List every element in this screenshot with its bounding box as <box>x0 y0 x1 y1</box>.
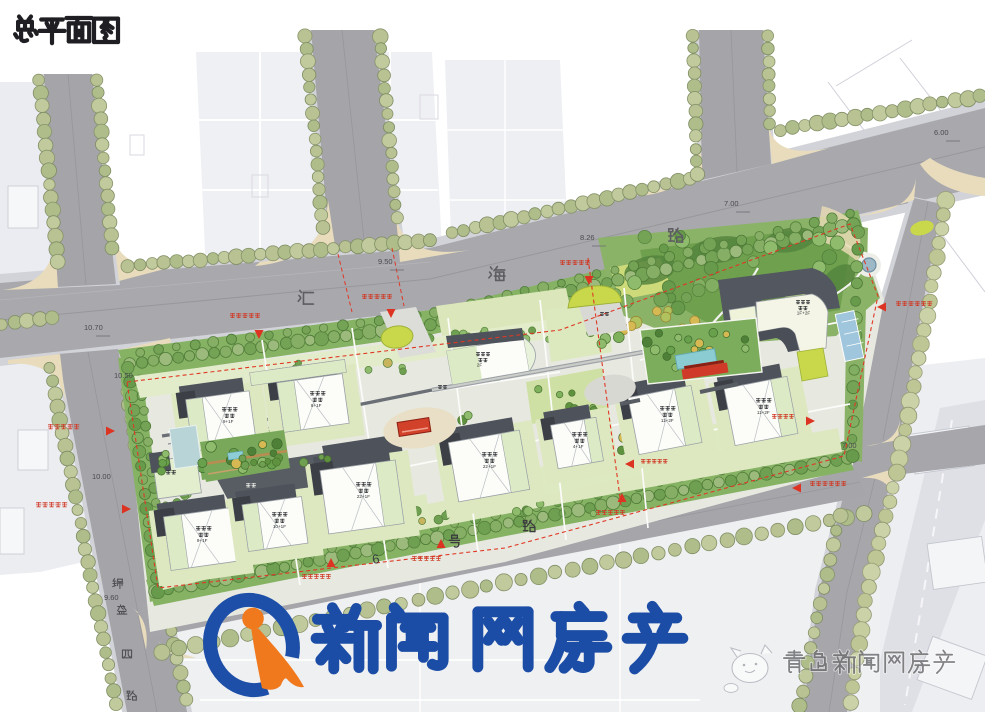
svg-text:7.00: 7.00 <box>724 199 739 208</box>
svg-text:22+1F: 22+1F <box>357 494 370 499</box>
svg-text:10.00: 10.00 <box>92 472 111 481</box>
svg-text:10.50: 10.50 <box>114 371 133 380</box>
svg-text:9.60: 9.60 <box>104 593 119 602</box>
svg-text:4+1F: 4+1F <box>573 444 584 449</box>
svg-text:10+1F: 10+1F <box>273 524 286 529</box>
svg-text:7.00: 7.00 <box>842 441 857 450</box>
svg-text:2F: 2F <box>477 362 483 367</box>
svg-text:6+1F: 6+1F <box>311 403 322 408</box>
svg-text:9+1F: 9+1F <box>197 538 208 543</box>
svg-text:10.70: 10.70 <box>84 323 103 332</box>
svg-text:9+1F: 9+1F <box>223 419 234 424</box>
svg-text:6.00: 6.00 <box>934 128 949 137</box>
svg-text:11+2F: 11+2F <box>757 410 770 415</box>
svg-text:8.26: 8.26 <box>580 233 595 242</box>
svg-text:1F+2F: 1F+2F <box>797 310 811 315</box>
svg-text:22+1F: 22+1F <box>483 464 496 469</box>
svg-text:11+2F: 11+2F <box>661 418 674 423</box>
svg-text:9.50: 9.50 <box>378 257 393 266</box>
